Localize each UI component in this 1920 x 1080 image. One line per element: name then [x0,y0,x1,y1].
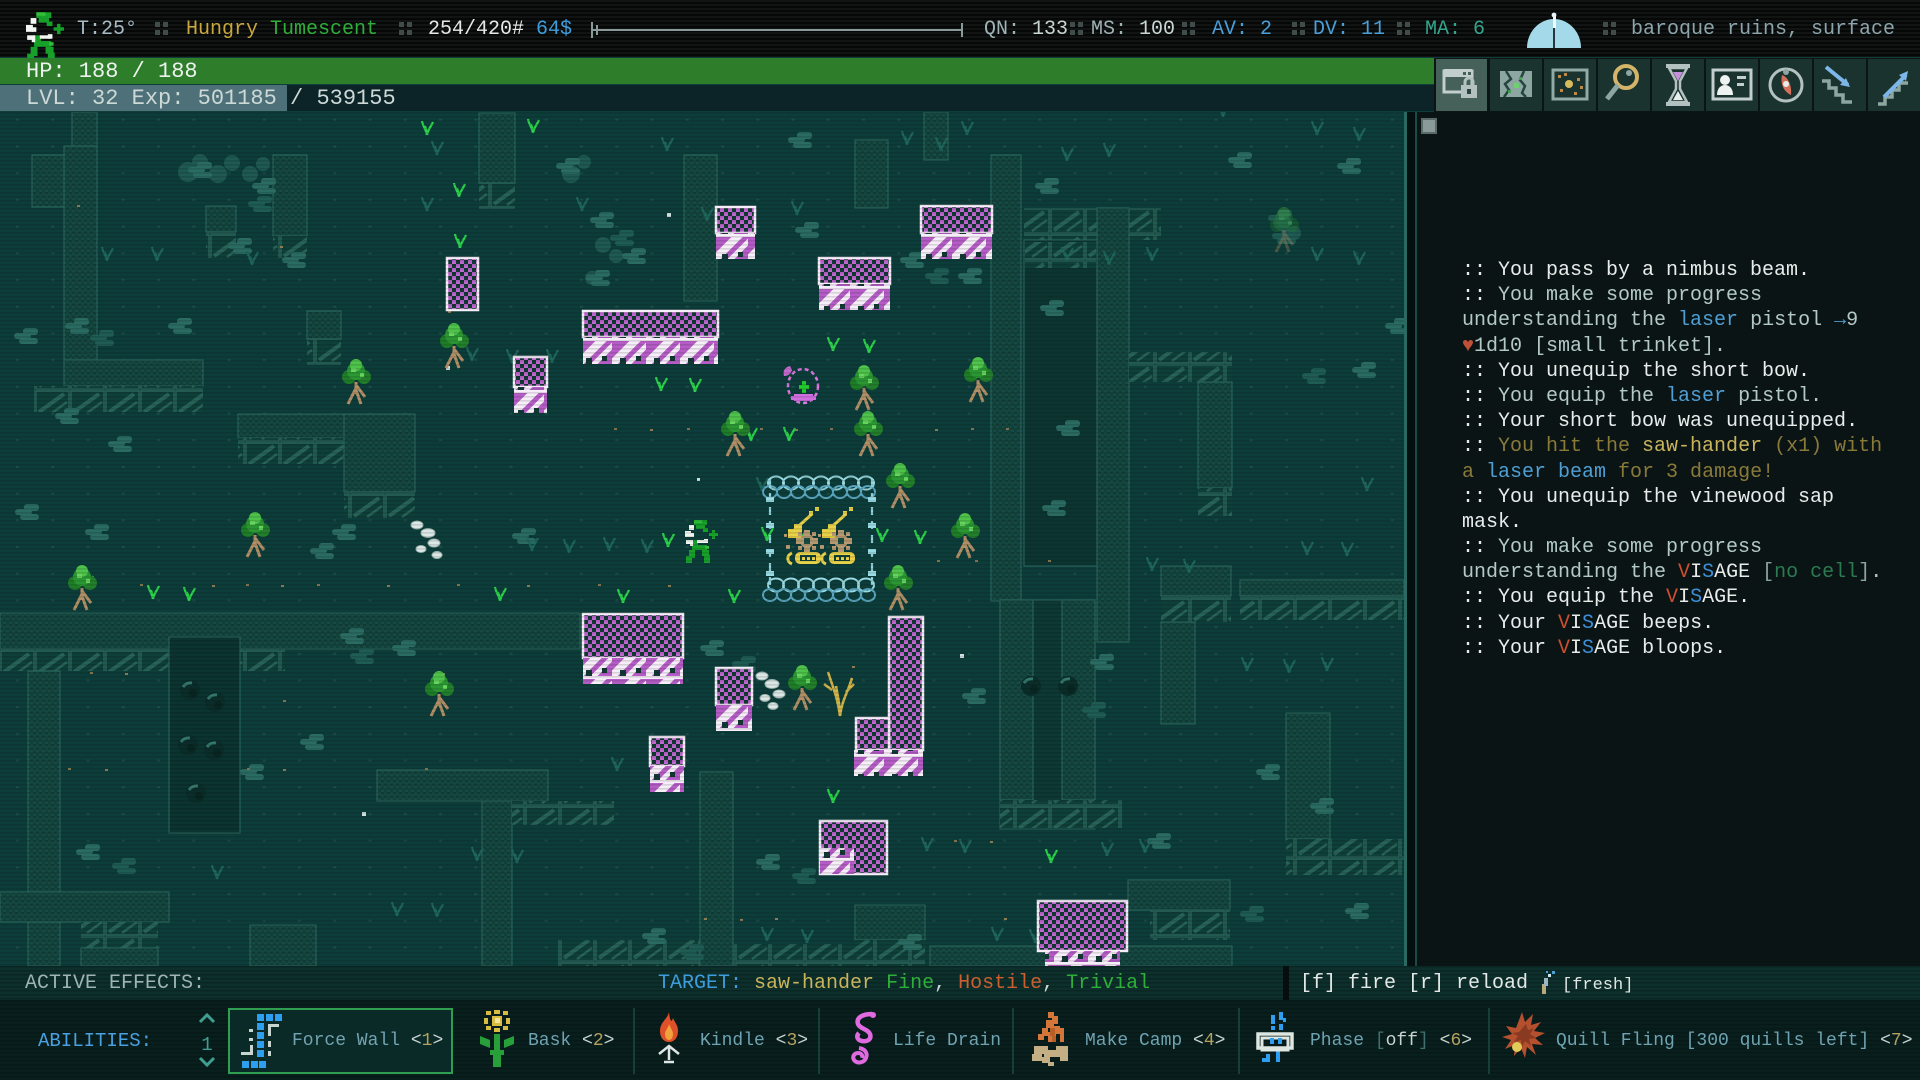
svg-text:1: 1 [201,1034,212,1056]
